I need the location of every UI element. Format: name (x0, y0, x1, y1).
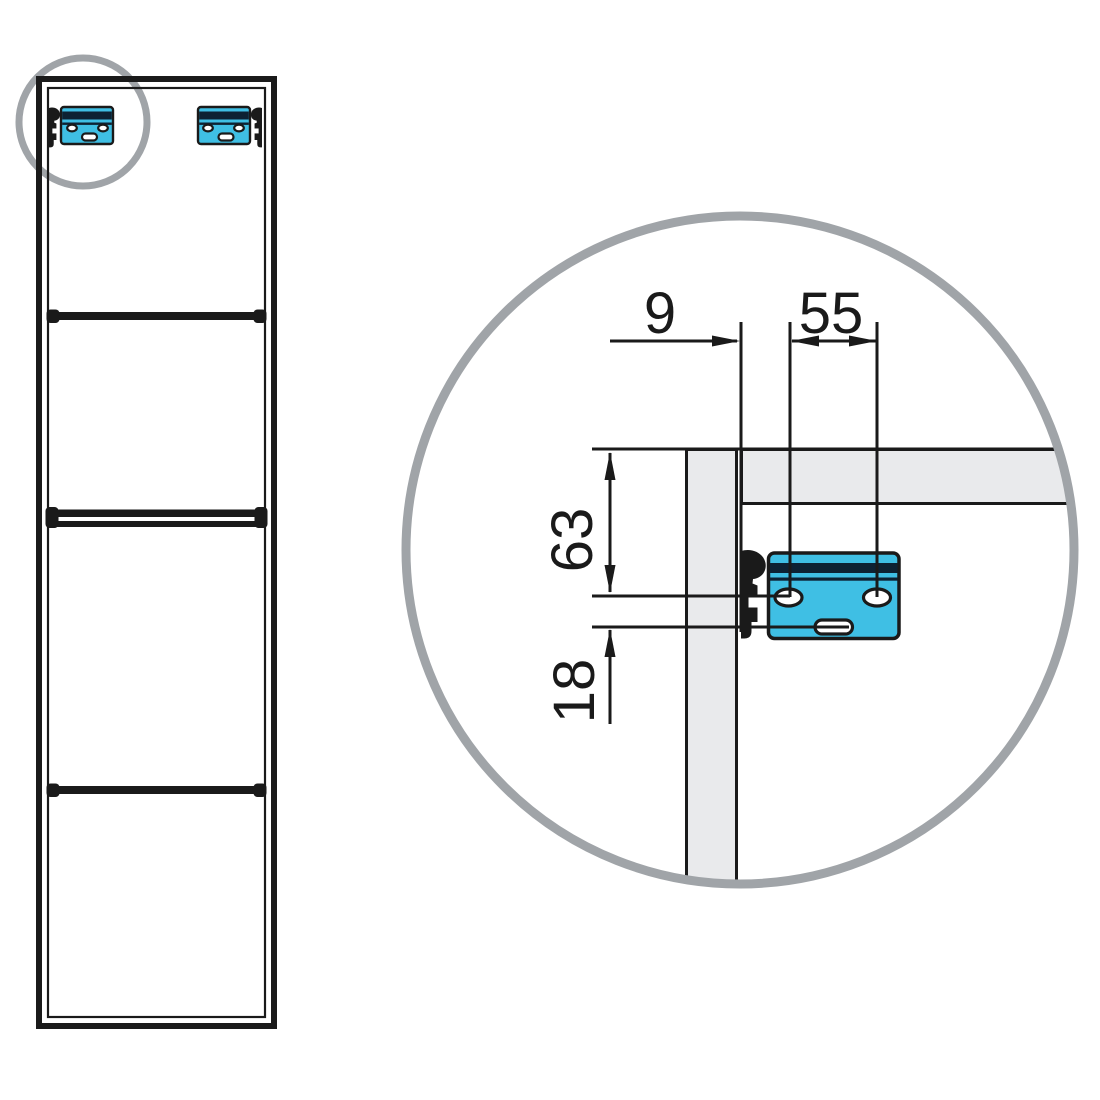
bracket-slot (82, 134, 97, 141)
suspension-hook-right-icon (251, 108, 262, 148)
dim-9-label: 9 (644, 281, 676, 346)
bracket-hole (203, 125, 213, 132)
bracket-stripe (62, 112, 112, 120)
side-panel-section (687, 450, 737, 886)
dim-55-label: 55 (799, 281, 864, 346)
bracket-hole (234, 125, 244, 132)
bracket-hole (98, 125, 108, 132)
bracket-stripe (199, 112, 249, 120)
cabinet-front-view (39, 79, 274, 1026)
suspension-hook-left-icon (49, 108, 60, 148)
mounting-bracket-right (198, 107, 262, 147)
mounting-bracket-left (49, 107, 113, 147)
cabinet-inner-frame (48, 88, 265, 1017)
bracket-hole (67, 125, 77, 132)
cabinet-outer-frame (39, 79, 274, 1026)
shelf-line-middle-double (46, 507, 268, 528)
dim-63-label: 63 (540, 508, 605, 573)
bracket-slot (219, 134, 234, 141)
dim-18-label: 18 (542, 659, 607, 724)
technical-drawing-canvas: 9 55 63 18 (0, 0, 1100, 1100)
shelf-line-bottom (47, 784, 267, 798)
cabinet-mounting-diagram: 9 55 63 18 (0, 0, 1100, 1100)
shelf-line-top (47, 310, 267, 324)
